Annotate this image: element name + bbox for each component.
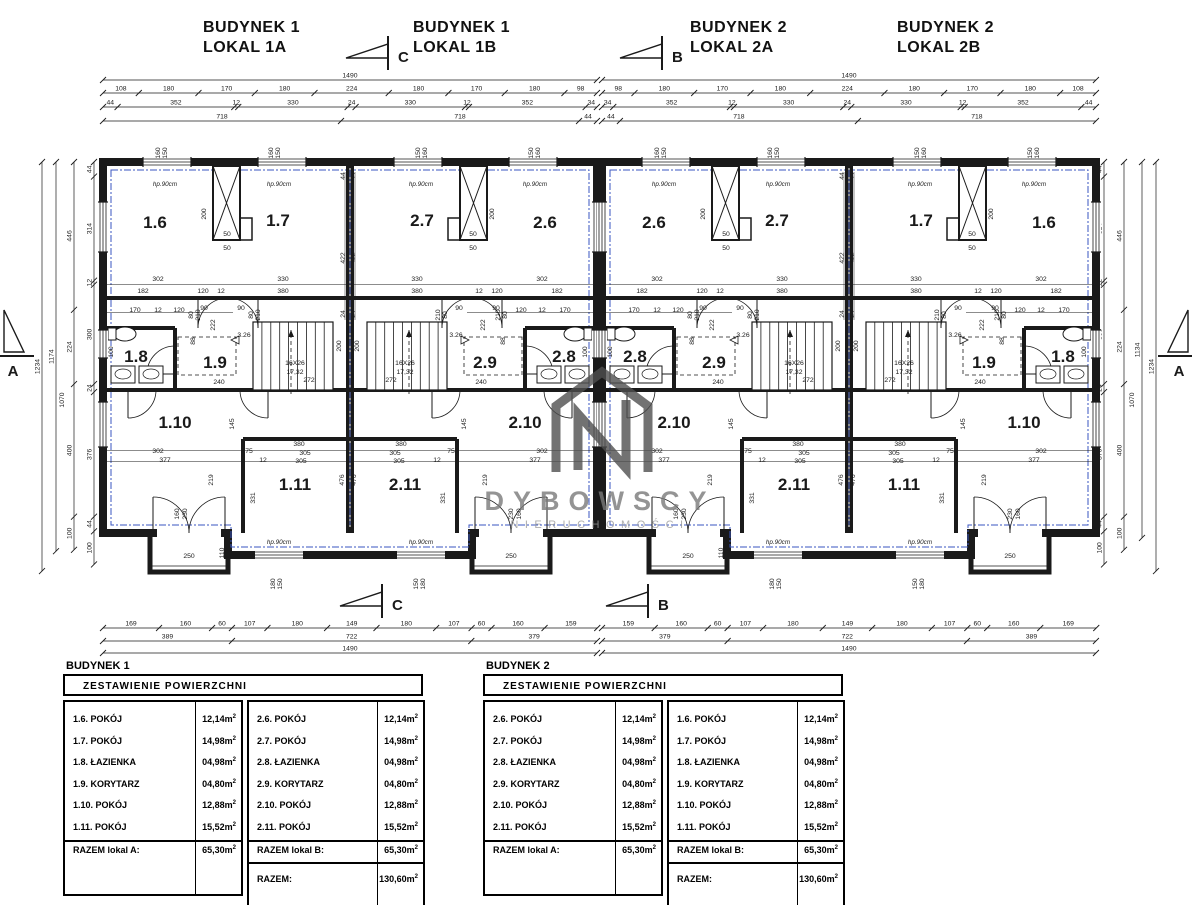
watermark-sub: NIERUCHOMOŚCI (510, 518, 689, 531)
total-value: 65,30m2 (804, 845, 838, 855)
dim-label: 180 (292, 621, 304, 628)
title-budynek1-lokal1b: BUDYNEK 1 LOKAL 1B (413, 18, 510, 58)
dim-label: 12 (232, 100, 240, 107)
dim-label: 331 (440, 492, 447, 504)
grand-total-label: RAZEM: (677, 874, 712, 884)
dim-label: 250 (183, 553, 195, 560)
dim-label: 145 (229, 418, 236, 430)
dim-label: 12 (217, 288, 225, 295)
watermark-brand: DYBOWSCY (484, 486, 715, 516)
dim-label: 422 (340, 252, 347, 264)
dim-label: 107 (448, 621, 460, 628)
dim-label: 75 (245, 448, 253, 455)
dim-label: 379 (659, 634, 671, 641)
dim-label: 210 (435, 309, 442, 321)
dim-label: 272 (802, 377, 814, 384)
dim-label: 60 (973, 621, 981, 628)
dim-label: 718 (733, 114, 745, 121)
section-letter: B (658, 597, 669, 614)
dim-label: 380 (776, 288, 788, 295)
dim-label: hp.90cm (523, 181, 547, 188)
dim-label: 331 (749, 492, 756, 504)
dim-label: 302 (651, 276, 663, 283)
square-sup: 2 (653, 779, 656, 785)
dim-label: 17,32 (785, 369, 802, 376)
total-label: RAZEM lokal B: (257, 845, 324, 855)
dim-label: 12 (87, 279, 94, 287)
dim-label: 200 (835, 340, 842, 352)
dim-label: 120 (173, 307, 185, 314)
dim-label: 160 (1015, 508, 1022, 520)
square-sup: 2 (653, 800, 656, 806)
room-area-label: 2.8. ŁAZIENKA (257, 757, 320, 767)
dim-label: 305 (794, 458, 806, 465)
dim-label: 180 (420, 578, 427, 590)
square-sup: 2 (233, 800, 236, 806)
room-label: 2.6 (642, 213, 666, 232)
dim-label: 222 (480, 319, 487, 331)
square-sup: 2 (835, 736, 838, 742)
dim-label: 182 (636, 288, 648, 295)
dim-label: 1490 (342, 73, 357, 80)
dim-label: 100 (582, 346, 589, 358)
dim-label: 150 (661, 147, 668, 159)
room-label: 1.6 (1032, 213, 1056, 232)
dim-label: 24 (87, 384, 94, 392)
dim-label: 16X26 (285, 360, 305, 367)
room-label: 2.9 (702, 353, 726, 372)
dim-label: 224 (842, 86, 854, 93)
dim-label: 80 (442, 311, 449, 319)
room-label: 2.10 (657, 413, 690, 432)
dim-label: 120 (491, 288, 503, 295)
dim-label: 302 (536, 276, 548, 283)
dim-label: 314 (87, 223, 94, 235)
dim-label: 110 (970, 547, 977, 558)
dim-label: 476 (351, 474, 358, 486)
dim-label: 150 (415, 147, 422, 159)
square-sup: 2 (415, 736, 418, 742)
square-sup: 2 (835, 845, 838, 851)
dim-label: 302 (651, 448, 663, 455)
dim-label: hp.90cm (409, 539, 433, 546)
staircase (253, 322, 333, 394)
dim-label: 12 (974, 288, 982, 295)
building-name: BUDYNEK 2 (690, 18, 787, 38)
dim-label: 1070 (1129, 392, 1136, 407)
square-sup: 2 (415, 800, 418, 806)
room-label: 1.7 (266, 211, 290, 230)
dim-label: 331 (250, 492, 257, 504)
dim-label: 422 (350, 252, 357, 264)
dim-label: 180 (769, 578, 776, 590)
dim-label: 90 (954, 305, 962, 312)
dim-label: 182 (137, 288, 149, 295)
room-area-value: 12,88m2 (202, 800, 236, 810)
dim-label: 219 (707, 474, 714, 486)
room-label: 2.9 (473, 353, 497, 372)
square-sup: 2 (233, 822, 236, 828)
dim-label: 50 (722, 245, 730, 252)
dim-label: hp.90cm (267, 181, 291, 188)
area-table-budynek-2: BUDYNEK 2ZESTAWIENIE POWIERZCHNI2.6. POK… (483, 660, 849, 890)
dim-label: 224 (1117, 341, 1124, 353)
dim-label: 389 (162, 634, 174, 641)
dim-label: 150 (275, 147, 282, 159)
grand-total-value: 130,60m2 (799, 874, 838, 884)
dim-label: hp.90cm (1022, 181, 1046, 188)
building-name: BUDYNEK 1 (203, 18, 300, 38)
dim-label: 170 (471, 86, 483, 93)
dim-label: 100 (67, 527, 74, 539)
dim-label: 379 (528, 634, 540, 641)
total-value: 65,30m2 (384, 845, 418, 855)
room-area-label: 2.9. KORYTARZ (257, 779, 324, 789)
dim-label: 60 (478, 621, 486, 628)
dim-label: 169 (125, 621, 137, 628)
room-area-value: 12,14m2 (804, 714, 838, 724)
table-column-colA: 2.6. POKÓJ12,14m22.7. POKÓJ14,98m22.8. Ł… (483, 700, 663, 896)
dim-label: 34 (588, 100, 596, 107)
dim-label: 12 (463, 100, 471, 107)
dim-label: 330 (900, 100, 912, 107)
dim-label: hp.90cm (908, 181, 932, 188)
dim-label: 3.26 (449, 332, 462, 339)
dim-label: hp.90cm (409, 181, 433, 188)
dim-label: 17,32 (286, 369, 303, 376)
square-sup: 2 (415, 779, 418, 785)
dim-label: 210 (994, 309, 1001, 321)
square-sup: 2 (233, 845, 236, 851)
dim-label: 305 (798, 450, 810, 457)
dim-label: 224 (67, 341, 74, 353)
dim-label: 108 (1072, 86, 1084, 93)
dim-label: 476 (850, 474, 857, 486)
grand-divider (669, 862, 843, 864)
dim-label: 50 (968, 245, 976, 252)
dim-label: 110 (718, 547, 725, 558)
dim-label: 305 (888, 450, 900, 457)
dim-label: 718 (971, 114, 983, 121)
dim-label: 90 (455, 305, 463, 312)
room-area-label: 1.6. POKÓJ (73, 714, 122, 724)
dim-label: 24 (839, 310, 846, 318)
dim-label: 200 (354, 340, 361, 352)
dim-label: 160 (1008, 621, 1020, 628)
dim-label: 1134 (1135, 342, 1142, 357)
dim-label: 230 (182, 508, 189, 520)
blueprint-page: 1490149010818017018022418017018098981801… (0, 0, 1199, 905)
dim-label: 1174 (49, 349, 56, 364)
dim-label: 250 (682, 553, 694, 560)
dim-label: 107 (944, 621, 956, 628)
square-sup: 2 (835, 800, 838, 806)
dim-label: 377 (529, 457, 541, 464)
column-divider (615, 702, 616, 894)
dim-label: 180 (163, 86, 175, 93)
dim-label: 12 (475, 288, 483, 295)
dim-label: 44 (607, 114, 615, 121)
dim-label: 150 (774, 147, 781, 159)
dim-label: 98 (577, 86, 585, 93)
dim-label: 250 (1004, 553, 1016, 560)
total-label: RAZEM lokal B: (677, 845, 744, 855)
room-area-label: 2.7. POKÓJ (257, 736, 306, 746)
dim-label: 120 (197, 288, 209, 295)
dim-label: 180 (401, 621, 413, 628)
dim-label: 17,32 (895, 369, 912, 376)
dim-label: 170 (1058, 307, 1070, 314)
room-area-value: 04,80m2 (622, 779, 656, 789)
dim-label: 90 (237, 305, 245, 312)
room-area-label: 2.11. POKÓJ (493, 822, 547, 832)
dim-label: 330 (405, 100, 417, 107)
room-label: 1.11 (888, 475, 920, 494)
dim-label: 160 (535, 147, 542, 159)
dim-label: 250 (505, 553, 517, 560)
total-value: 65,30m2 (622, 845, 656, 855)
room-area-label: 2.6. POKÓJ (257, 714, 306, 724)
dim-label: 330 (287, 100, 299, 107)
square-sup: 2 (233, 714, 236, 720)
staircase (752, 322, 832, 394)
room-area-value: 04,98m2 (202, 757, 236, 767)
dim-label: 476 (838, 474, 845, 486)
dim-label: 50 (223, 245, 231, 252)
unit-name: LOKAL 2B (897, 38, 994, 58)
dim-label: 200 (336, 340, 343, 352)
dim-label: 159 (623, 621, 635, 628)
room-area-value: 12,14m2 (622, 714, 656, 724)
title-budynek2-lokal2a: BUDYNEK 2 LOKAL 2A (690, 18, 787, 58)
room-label: 1.6 (143, 213, 167, 232)
room-area-value: 15,52m2 (804, 822, 838, 832)
dim-label: 160 (676, 621, 688, 628)
room-area-label: 2.11. POKÓJ (257, 822, 311, 832)
room-label: 1.8 (1051, 347, 1075, 366)
dim-label: 145 (960, 418, 967, 430)
dim-label: 180 (413, 86, 425, 93)
table-column-colA: 1.6. POKÓJ12,14m21.7. POKÓJ14,98m21.8. Ł… (63, 700, 243, 896)
dim-label: 302 (152, 448, 164, 455)
dim-label: 16X26 (894, 360, 914, 367)
room-label: 1.7 (909, 211, 933, 230)
section-letter: B (672, 49, 683, 66)
table-building-title: BUDYNEK 2 (486, 660, 550, 672)
square-sup: 2 (233, 736, 236, 742)
room-area-label: 1.7. POKÓJ (677, 736, 726, 746)
square-sup: 2 (415, 845, 418, 851)
building-name: BUDYNEK 1 (413, 18, 510, 38)
dim-label: 210 (934, 309, 941, 321)
total-divider (249, 840, 423, 842)
dim-label: 145 (728, 418, 735, 430)
dim-label: 331 (939, 492, 946, 504)
dim-label: 160 (654, 147, 661, 159)
dim-label: 12 (728, 100, 736, 107)
square-sup: 2 (653, 714, 656, 720)
total-label: RAZEM lokal A: (73, 845, 140, 855)
room-label: 1.9 (203, 353, 227, 372)
square-sup: 2 (835, 779, 838, 785)
entrance-porch (150, 497, 228, 572)
dim-label: 219 (981, 474, 988, 486)
dim-label: 182 (551, 288, 563, 295)
dim-label: 200 (489, 208, 496, 220)
unit-name: LOKAL 1A (203, 38, 300, 58)
dim-label: 12 (716, 288, 724, 295)
dim-label: 80 (502, 311, 509, 319)
dim-label: 100 (1117, 527, 1124, 539)
dim-label: 380 (277, 288, 289, 295)
dim-label: 110 (219, 547, 226, 558)
dim-label: 88 (190, 337, 197, 345)
dim-label: 180 (659, 86, 671, 93)
dim-label: 305 (295, 458, 307, 465)
room-label: 1.8 (124, 347, 148, 366)
square-sup: 2 (415, 757, 418, 763)
room-label: 2.7 (410, 211, 434, 230)
dim-label: 380 (293, 441, 305, 448)
room-area-value: 14,98m2 (804, 736, 838, 746)
dim-label: 145 (461, 418, 468, 430)
room-area-label: 1.8. ŁAZIENKA (677, 757, 740, 767)
dim-label: 302 (1035, 448, 1047, 455)
room-area-label: 2.7. POKÓJ (493, 736, 542, 746)
dim-label: 12 (154, 307, 162, 314)
dim-label: 100 (87, 542, 94, 554)
dim-label: 24 (340, 310, 347, 318)
dim-label: 1070 (59, 392, 66, 407)
grand-total-label: RAZEM: (257, 874, 292, 884)
dim-label: 100 (1081, 346, 1088, 358)
room-area-value: 12,88m2 (384, 800, 418, 810)
dim-label: 272 (385, 377, 397, 384)
dim-label: 200 (700, 208, 707, 220)
dim-label: 446 (67, 230, 74, 242)
dim-label: hp.90cm (153, 181, 177, 188)
room-label: 2.6 (533, 213, 557, 232)
dim-label: 1234 (1149, 359, 1156, 374)
total-label: RAZEM lokal A: (493, 845, 560, 855)
dim-label: 16X26 (784, 360, 804, 367)
dim-label: 44 (340, 172, 347, 180)
dim-label: 17,32 (396, 369, 413, 376)
dim-label: 722 (346, 634, 358, 641)
table-building-title: BUDYNEK 1 (66, 660, 130, 672)
dim-label: 12 (538, 307, 546, 314)
dim-label: 12 (758, 457, 766, 464)
dim-label: 75 (946, 448, 954, 455)
dim-label: 160 (767, 147, 774, 159)
dim-label: 240 (712, 379, 724, 386)
dim-label: 272 (303, 377, 315, 384)
dim-label: 302 (536, 448, 548, 455)
room-area-value: 12,88m2 (622, 800, 656, 810)
room-label: 2.11 (389, 475, 421, 494)
column-divider (195, 702, 196, 894)
dim-label: 718 (216, 114, 228, 121)
dim-label: 44 (1085, 100, 1093, 107)
dim-label: 170 (221, 86, 233, 93)
dim-label: 80 (1001, 311, 1008, 319)
dim-label: 44 (107, 100, 115, 107)
dim-label: 272 (884, 377, 896, 384)
room-area-label: 2.6. POKÓJ (493, 714, 542, 724)
room-area-value: 04,80m2 (804, 779, 838, 789)
dim-label: 44 (87, 520, 94, 528)
dim-label: 88 (999, 337, 1006, 345)
dim-label: 170 (129, 307, 141, 314)
dim-label: 330 (277, 276, 289, 283)
room-label: 1.9 (972, 353, 996, 372)
room-area-value: 14,98m2 (384, 736, 418, 746)
dim-label: 160 (1034, 147, 1041, 159)
room-area-value: 15,52m2 (622, 822, 656, 832)
square-sup: 2 (415, 714, 418, 720)
dim-label: 180 (919, 578, 926, 590)
square-sup: 2 (415, 874, 418, 880)
dim-label: 160 (180, 621, 192, 628)
room-area-value: 12,88m2 (804, 800, 838, 810)
room-label: 1.11 (279, 475, 311, 494)
dim-label: 300 (87, 328, 94, 340)
dim-label: 170 (717, 86, 729, 93)
dim-label: 150 (776, 578, 783, 590)
dim-label: 380 (910, 288, 922, 295)
total-value: 65,30m2 (202, 845, 236, 855)
column-divider (797, 702, 798, 905)
dim-label: 107 (740, 621, 752, 628)
room-label: 2.8 (552, 347, 576, 366)
dim-label: 200 (988, 208, 995, 220)
dim-label: 34 (604, 100, 612, 107)
dim-label: 240 (213, 379, 225, 386)
dim-label: 100 (1097, 542, 1104, 554)
dim-label: hp.90cm (908, 539, 932, 546)
room-label: 2.8 (623, 347, 647, 366)
dim-label: 50 (722, 231, 730, 238)
dim-label: 150 (912, 578, 919, 590)
dim-label: 160 (422, 147, 429, 159)
building-name: BUDYNEK 2 (897, 18, 994, 38)
dim-label: 80 (188, 311, 195, 319)
title-budynek1-lokal1a: BUDYNEK 1 LOKAL 1A (203, 18, 300, 58)
dim-label: 180 (270, 578, 277, 590)
table-header: ZESTAWIENIE POWIERZCHNI (63, 674, 423, 696)
dim-label: 160 (268, 147, 275, 159)
room-area-label: 1.9. KORYTARZ (73, 779, 140, 789)
square-sup: 2 (415, 822, 418, 828)
dim-label: 80 (687, 311, 694, 319)
total-divider (485, 840, 661, 842)
room-area-label: 1.6. POKÓJ (677, 714, 726, 724)
room-area-value: 14,98m2 (202, 736, 236, 746)
dim-label: 160 (512, 621, 524, 628)
dim-label: 16X26 (395, 360, 415, 367)
dim-label: 180 (279, 86, 291, 93)
room-area-label: 1.8. ŁAZIENKA (73, 757, 136, 767)
dim-label: 50 (469, 245, 477, 252)
dim-label: 150 (528, 147, 535, 159)
dim-label: 302 (1035, 276, 1047, 283)
dim-label: 149 (842, 621, 854, 628)
dim-label: 149 (346, 621, 358, 628)
dim-label: 476 (339, 474, 346, 486)
room-area-label: 2.9. KORYTARZ (493, 779, 560, 789)
dim-label: 446 (1117, 230, 1124, 242)
dim-label: 108 (115, 86, 127, 93)
